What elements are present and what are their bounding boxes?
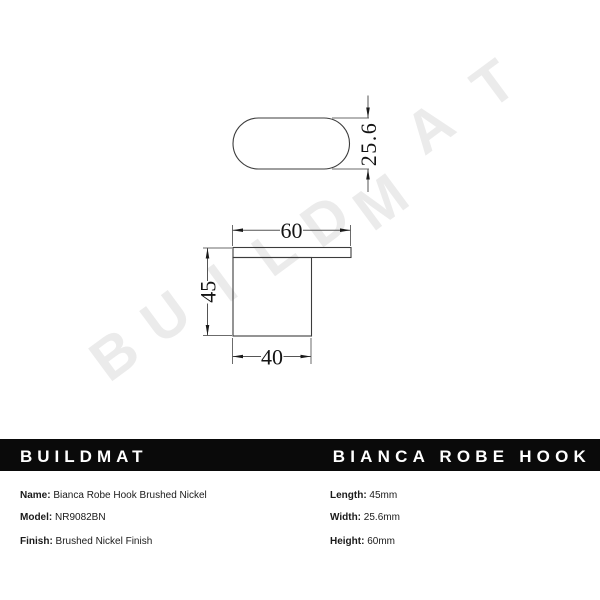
- svg-text:60: 60: [281, 218, 303, 243]
- svg-text:B: B: [78, 316, 152, 394]
- svg-text:40: 40: [261, 344, 283, 369]
- svg-text:45: 45: [196, 281, 221, 303]
- svg-text:A: A: [393, 89, 467, 167]
- svg-text:U: U: [129, 278, 203, 356]
- svg-text:25.6: 25.6: [356, 122, 381, 167]
- svg-text:T: T: [459, 47, 527, 121]
